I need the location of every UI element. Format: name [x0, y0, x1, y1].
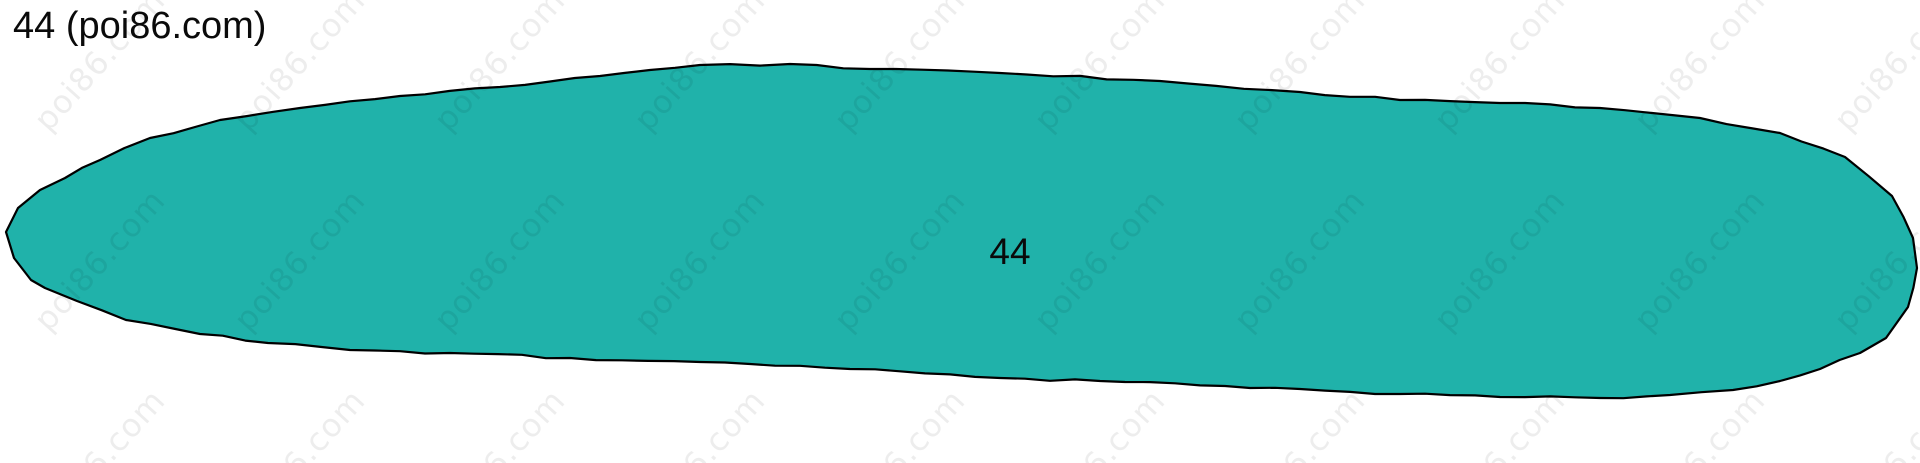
node-ellipse-svg: [0, 0, 1920, 463]
diagram-canvas: poi86.compoi86.compoi86.compoi86.compoi8…: [0, 0, 1920, 463]
node-label: 44: [989, 231, 1030, 273]
page-title: 44 (poi86.com): [13, 5, 266, 49]
node-ellipse-shape: [6, 64, 1917, 398]
